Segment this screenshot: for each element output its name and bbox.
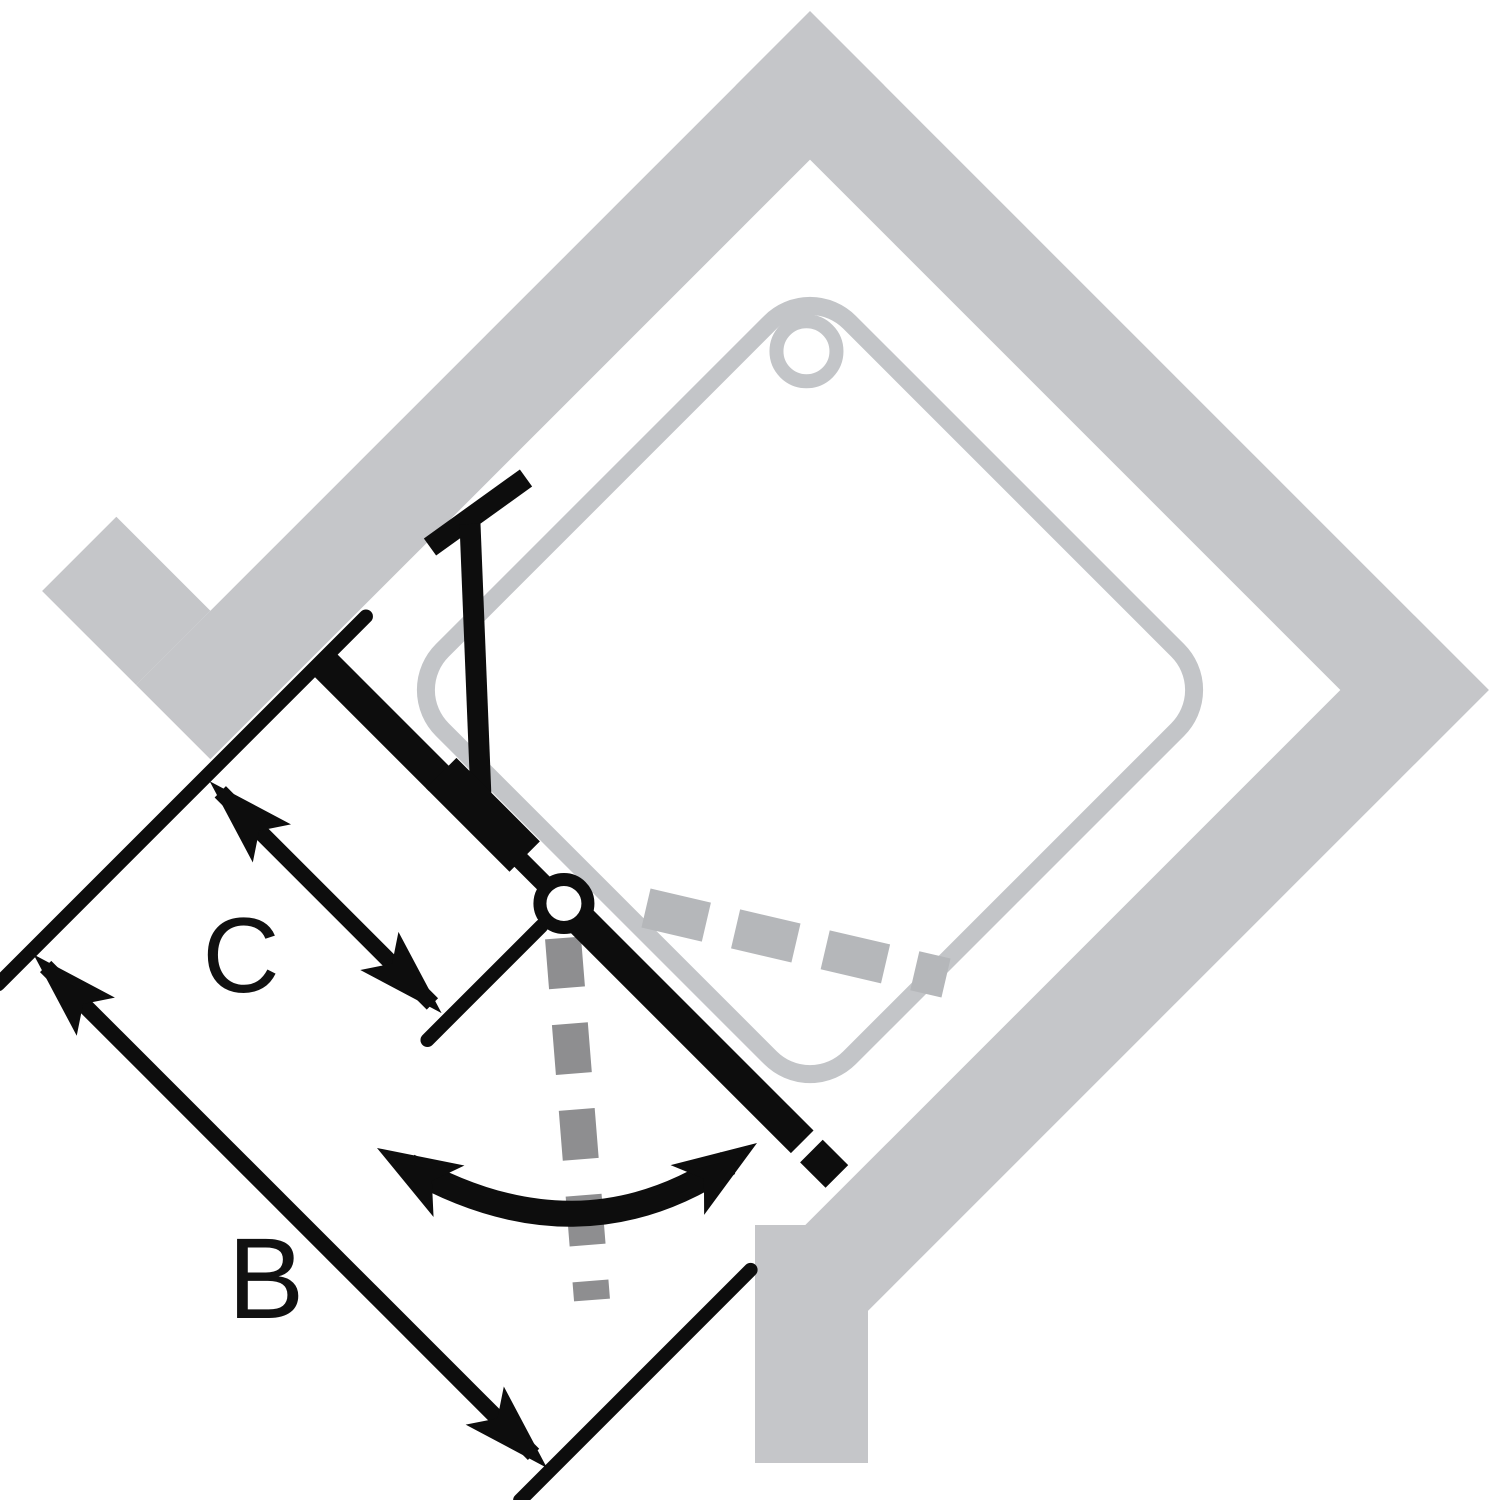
swing-arc-arrowhead-left [362, 1122, 465, 1217]
wall-top-right [736, 11, 1489, 764]
dimension-b-label: B [228, 1215, 305, 1343]
diagram-canvas: C B [0, 0, 1500, 1500]
swing-arc-arrow [408, 1163, 728, 1214]
door-edge-segment [800, 1140, 848, 1188]
door-swing-outward-dashed [563, 938, 592, 1300]
support-strut [470, 524, 481, 798]
witness-line-bottom [520, 1270, 751, 1500]
dimension-labels: C B [202, 895, 304, 1343]
witness-line-hinge [427, 926, 541, 1040]
dimension-c-label: C [202, 895, 279, 1015]
wall-end-foot-right [755, 1225, 868, 1463]
shower-plan-diagram: C B [0, 0, 1500, 1500]
wall-top-left [136, 11, 884, 759]
dimension-b-shaft [46, 966, 534, 1454]
